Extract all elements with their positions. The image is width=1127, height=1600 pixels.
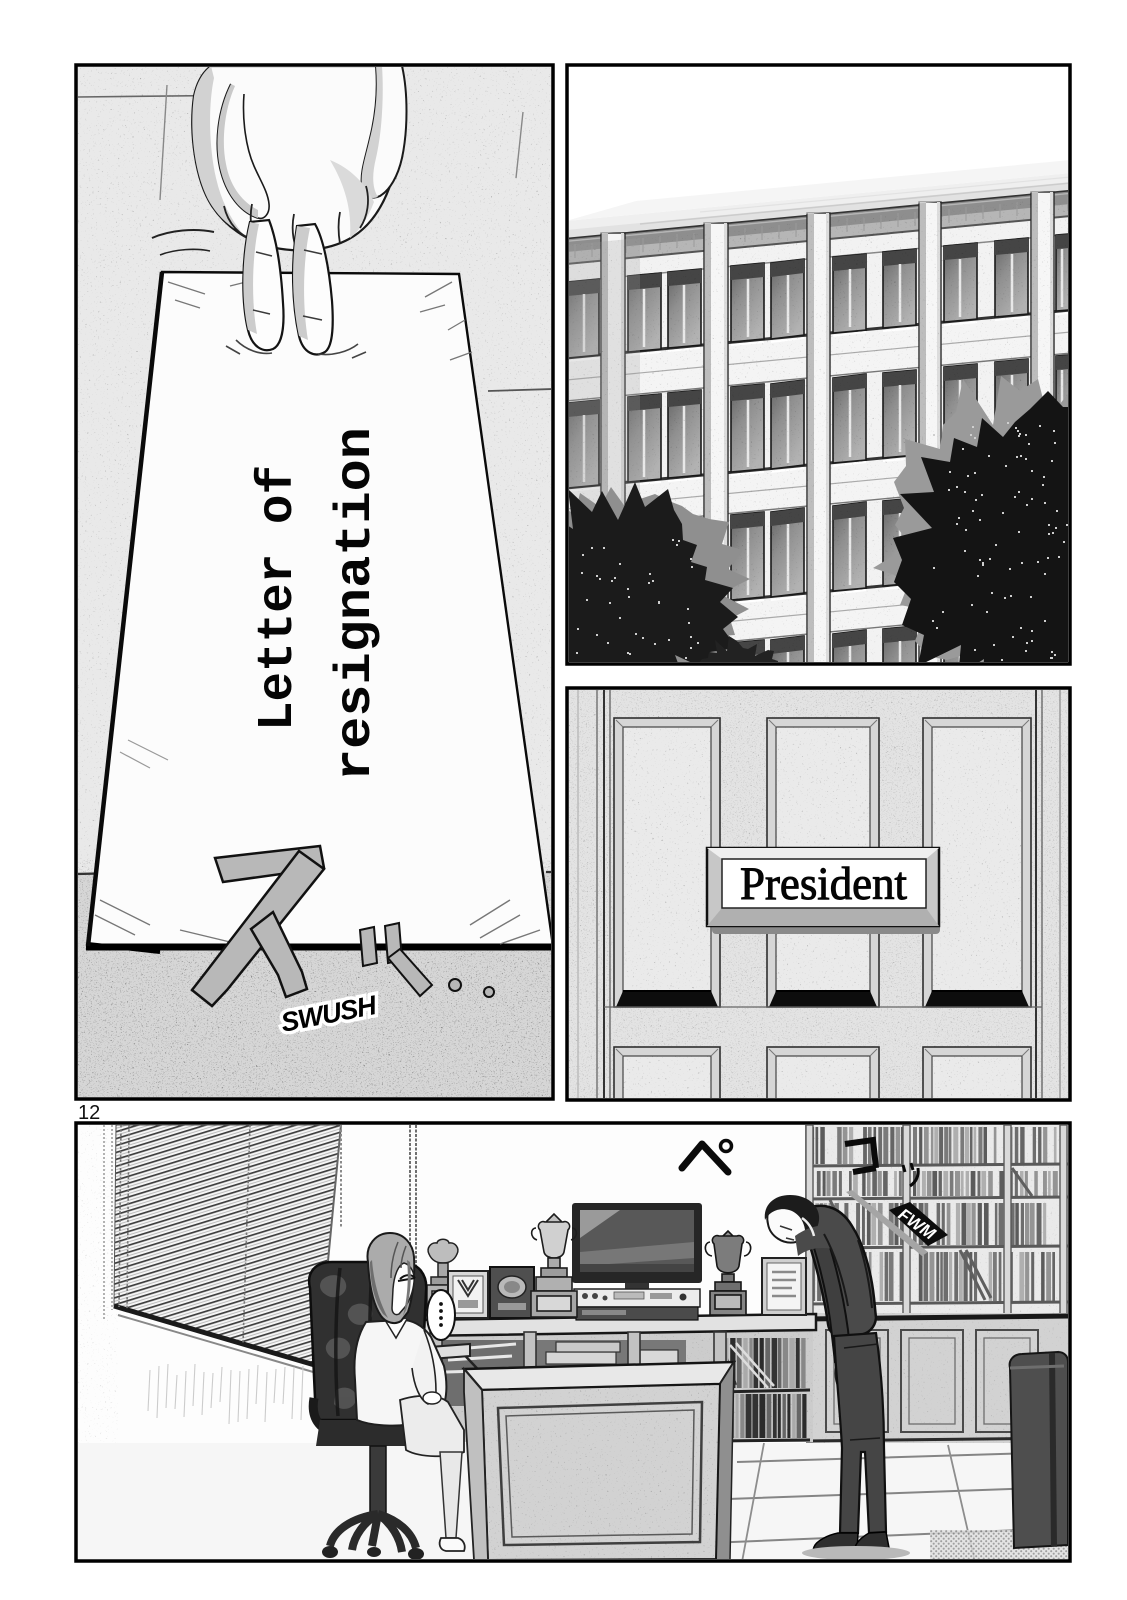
svg-text:Letter of: Letter of xyxy=(250,465,307,731)
svg-text:12: 12 xyxy=(78,1102,100,1124)
svg-text:resignation: resignation xyxy=(328,427,385,781)
svg-text:President: President xyxy=(740,858,907,910)
